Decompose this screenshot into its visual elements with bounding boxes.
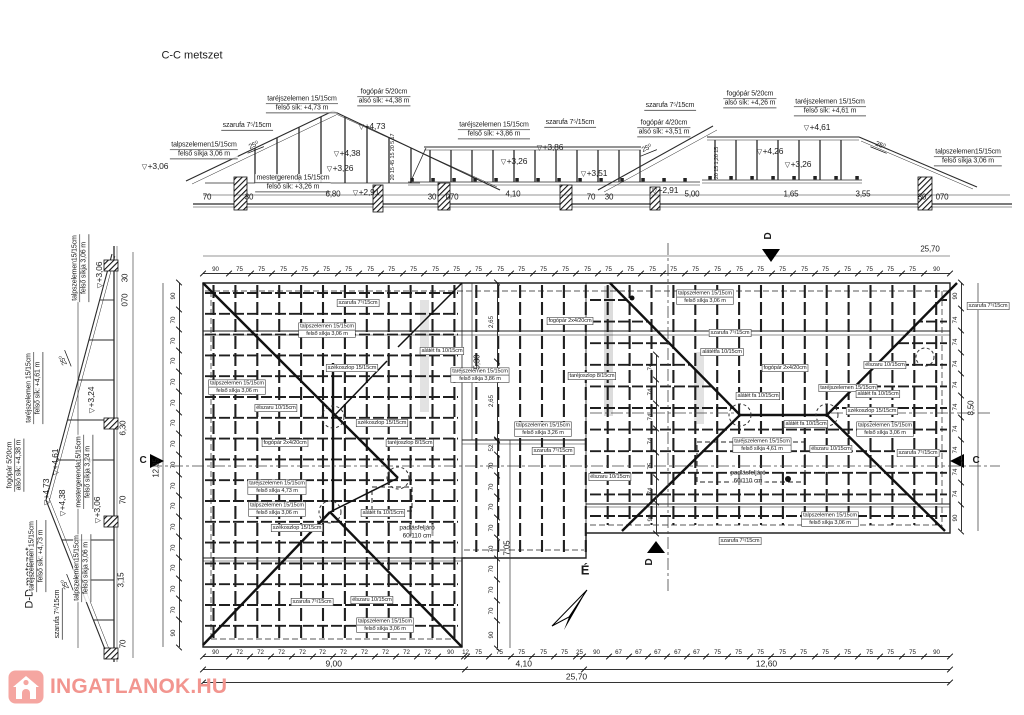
drawing-label: szarufa 7⁵/15cm: [54, 588, 63, 639]
watermark-logo: INGATLANOK.HU: [8, 670, 227, 704]
drawing-label: 30: [428, 193, 437, 202]
dimension-value: 72: [250, 645, 271, 656]
drawing-label: padlásfeljáró60/110 cm: [730, 469, 765, 484]
dimension-value: 90: [203, 645, 229, 656]
drawing-label: D: [763, 232, 775, 239]
drawing-label: alátét fa 10/15cm: [736, 392, 780, 400]
plan-shading: [420, 286, 704, 424]
drawing-label: +4,26: [757, 147, 784, 157]
drawing-label: fogópár 5/20cmalsó sík: +4,26 m: [723, 90, 777, 108]
drawing-label: taréjoszlop 8/15cm: [568, 372, 616, 380]
dimension-value: 75: [750, 645, 772, 656]
dimension-value: 4,10: [465, 658, 584, 669]
drawing-label: szarufa 7⁵/15cm: [291, 598, 333, 606]
dimension-value: 72: [313, 645, 334, 656]
dimension-value: 25: [576, 645, 583, 656]
drawing-label: szarufa 7⁵/15cm: [337, 299, 379, 307]
drawing-label: fogópár 2x4/20cm: [547, 317, 593, 325]
dimension-value: 90: [924, 645, 950, 656]
drawing-label: szarufa 7⁵/15cm: [221, 122, 272, 131]
drawing-label: +2,91: [353, 188, 380, 198]
dimension-value: 75: [707, 262, 729, 273]
drawing-label: talpszelemen15/15cmfelső síkja 3,06 m: [73, 534, 91, 602]
drawing-label: talpszelemen 15/15cmfelső síkja 3,06 m: [676, 290, 733, 305]
dimension-value: 75: [880, 645, 902, 656]
dimension-chain: 9074747474747474747490: [950, 283, 962, 531]
drawing-label: É: [581, 564, 589, 579]
drawing-label: 1,65: [784, 190, 799, 199]
dimension-value: 75: [858, 645, 880, 656]
drawing-label: +3,26: [785, 160, 812, 170]
dimension-value: 67: [687, 645, 706, 656]
drawing-label: élszaru 10/15cm: [810, 445, 853, 453]
dimension-chain: 9072727272727272727272901275757575752590…: [203, 645, 950, 657]
dimension-value: 75: [229, 262, 251, 273]
drawing-label: +3,06: [142, 162, 169, 172]
dimension-value: 67: [609, 645, 628, 656]
dimension-value: 75: [685, 262, 707, 273]
dimension-value: 75: [316, 262, 338, 273]
drawing-label: talpszelemen 15/15cmfelső síkja 3,06 m: [208, 380, 265, 395]
dimension-chain: 9,004,1012,60: [203, 658, 950, 670]
house-icon: [8, 670, 44, 704]
drawing-label: mestergerenda15/15cmfelső síkja 3,24 m: [75, 435, 93, 509]
drawing-label: taréjszelemen 15/15cmfelső síkja 4,73 m: [248, 480, 307, 495]
dimension-value: 75: [706, 645, 728, 656]
watermark-text: INGATLANOK.HU: [50, 675, 227, 699]
drawing-label: 30: [121, 274, 130, 283]
drawing-label: +3,24: [87, 387, 97, 414]
drawing-label: székoszlop 15/15cm: [271, 524, 323, 532]
dimension-value: 75: [663, 262, 685, 273]
dimension-value: 72: [354, 645, 375, 656]
dimension-value: 75: [880, 262, 902, 273]
drawing-label: 070: [446, 193, 459, 202]
dimension-value: 75: [771, 645, 793, 656]
drawing-label: szarufa 7⁵/15cm: [967, 302, 1009, 310]
dimension-value: 72: [292, 645, 313, 656]
dimension-value: 75: [532, 645, 554, 656]
drawing-label: C: [139, 455, 146, 467]
drawing-label: 70: [587, 193, 596, 202]
drawing-label: 70: [203, 193, 212, 202]
dimension-value: 72: [229, 645, 250, 656]
drawing-label: alátét fa 10/15cm: [420, 347, 464, 355]
drawing-label: talpszelemen 15/15cmfelső síkja 3,06 m: [801, 512, 858, 527]
dimension-value: 25,70: [203, 671, 950, 682]
drawing-label: 070: [936, 193, 949, 202]
dimension-value: 75: [815, 262, 837, 273]
drawing-label: talpszelemen15/15cmfelső síkja 3,06 m: [71, 234, 89, 302]
dimension-value: 75: [837, 262, 859, 273]
dimension-value: 75: [554, 645, 576, 656]
drawing-label: szarufa 7⁵/15cm: [709, 329, 751, 337]
dimension-value: 75: [750, 262, 772, 273]
blueprint-canvas: C-C metszetD-D metszettaréjszelemen 15/1…: [0, 0, 1024, 715]
dimension-value: 75: [858, 262, 880, 273]
drawing-label: 30: [918, 193, 927, 202]
drawing-label: székoszlop 15/15cm: [846, 407, 898, 415]
drawing-label: +4,73: [359, 122, 386, 132]
dimension-value: 72: [417, 645, 438, 656]
drawing-label: 12,35: [152, 458, 161, 477]
drawing-linework: [0, 0, 1024, 715]
drawing-label: talpszelemen 15/15cmfelső síkja 3,06 m: [298, 323, 355, 338]
drawing-label: +4,61: [804, 123, 831, 133]
drawing-label: 8,50: [967, 401, 976, 416]
drawing-label: +3,86: [537, 143, 564, 153]
dimension-value: 90: [924, 262, 950, 273]
drawing-label: talpszelemen 15/15cmfelső síkja 3,06 m: [856, 422, 913, 437]
drawing-label: élszaru 10/15cm: [351, 596, 394, 604]
dimension-value: 74: [645, 355, 656, 380]
dimension-value: 75: [489, 262, 511, 273]
dimension-value: 75: [902, 262, 924, 273]
drawing-label: +3,26: [327, 164, 354, 174]
dimension-value: 67: [648, 645, 667, 656]
dimension-value: 75: [294, 262, 316, 273]
drawing-label: 3,55: [856, 190, 871, 199]
dimension-chain: 2,652,65: [486, 283, 498, 440]
dimension-value: 75: [620, 262, 642, 273]
dimension-value: 75: [359, 262, 381, 273]
dimension-value: 72: [333, 645, 354, 656]
drawing-label: székoszlop 15/15cm: [326, 364, 378, 372]
dimension-value: 90: [203, 262, 229, 273]
drawing-label: szarufa 7⁵/15cm: [644, 102, 695, 111]
dimension-value: 75: [446, 262, 468, 273]
dimension-value: 75: [533, 262, 555, 273]
drawing-label: 6,80: [326, 190, 341, 199]
dimension-value: 75: [511, 645, 533, 656]
drawing-label: taréjszelemen 15/15cmfelső sík: +3,86 m: [458, 121, 530, 139]
drawing-label: fogópár 5/20cmalsó sík: +4,38 m: [6, 438, 24, 492]
drawing-label: D: [644, 558, 656, 565]
dimension-value: 90: [645, 503, 656, 533]
dimension-chain: 9070707070707070707070707070707090: [168, 283, 180, 647]
dimension-value: 75: [555, 262, 577, 273]
drawing-label: talpszelemen 15/15cmfelső síkja 3,26 m: [514, 422, 571, 437]
drawing-label: szarufa 7⁵/15cm: [719, 537, 761, 545]
drawing-label: taréjoszlop 8/15cm: [386, 439, 434, 447]
dimension-value: 75: [511, 262, 533, 273]
drawing-label: +4,73: [42, 479, 52, 506]
drawing-label: +3,06: [93, 497, 103, 524]
drawing-label: fogópár 2x4/20cm: [762, 364, 808, 372]
drawing-label: taréjszelemen 15/15cmfelső sík: +4,61 m: [794, 98, 866, 116]
drawing-label: +3,51: [581, 169, 608, 179]
dimension-value: 90: [168, 283, 179, 310]
drawing-label: 5,30: [473, 355, 482, 370]
dimension-value: 74: [645, 404, 656, 429]
drawing-label: alátét fa 10/15cm: [361, 509, 405, 517]
drawing-label: taréjszelemen 15/15cmfelső sík: +4,61 m: [25, 352, 43, 424]
dimension-value: 72: [271, 645, 292, 656]
dimension-value: 67: [667, 645, 686, 656]
dimension-value: 9,00: [203, 658, 465, 669]
dimension-value: 75: [381, 262, 403, 273]
drawing-label: 20 15 45 15 20 5 17: [390, 134, 396, 181]
drawing-label: 5,00: [685, 190, 700, 199]
drawing-label: talpszelemen15/15cmfelső síkja 3,06 m: [934, 148, 1002, 166]
north-arrow-icon: [552, 590, 587, 630]
drawing-label: talpszelemen 15/15cmfelső síkja 3,06 m: [356, 618, 413, 633]
drawing-label: taréjszelemen 15/15cmfelső síkja 4,61 m: [733, 438, 792, 453]
drawing-label: fogópár 5/20cmalsó sík: +4,38 m: [357, 88, 411, 106]
drawing-label: 70: [119, 496, 128, 505]
dimension-chain: 52707070707070707090: [486, 440, 498, 648]
drawing-label: 70: [119, 640, 128, 649]
drawing-label: talpszelemen15/15cmfelső síkja 3,06 m: [170, 141, 238, 159]
drawing-label: fogópár 2x4/20cm: [262, 439, 308, 447]
dimension-value: 75: [837, 645, 859, 656]
dimension-value: 12,60: [584, 658, 950, 669]
dimension-value: 67: [629, 645, 648, 656]
dimension-value: 75: [728, 645, 750, 656]
dimension-value: 75: [772, 262, 794, 273]
drawing-label: +4,38: [58, 490, 68, 517]
dimension-chain: 25,70: [203, 671, 950, 683]
drawing-label: 30: [245, 193, 254, 202]
dimension-value: 72: [375, 645, 396, 656]
dimension-chain: 74747474757490: [645, 355, 657, 533]
dimension-value: 75: [641, 262, 663, 273]
drawing-label: szarufa 7⁵/15cm: [897, 449, 939, 457]
drawing-label: +3,26: [501, 157, 528, 167]
dimension-value: 72: [396, 645, 417, 656]
drawing-label: 30: [605, 193, 614, 202]
dimension-value: 75: [424, 262, 446, 273]
drawing-label: szarufa 7⁵/15cm: [532, 447, 574, 455]
drawing-label: élszaru 10/15cm: [255, 404, 298, 412]
dimension-value: 75: [251, 262, 273, 273]
dimension-value: 2,65: [486, 283, 497, 362]
drawing-label: alátét fa 10/15cm: [856, 390, 900, 398]
dimension-value: 75: [272, 262, 294, 273]
dimension-value: 90: [950, 505, 961, 531]
drawing-label: alátét fa 10/15cm: [784, 420, 828, 428]
drawing-label: alátétfa 10/15cm: [701, 348, 744, 356]
drawing-label: 20 15 1,20 15: [714, 147, 720, 179]
drawing-label: taréjszelemen 15/15cmfelső sík: +4,73 m: [28, 520, 46, 592]
drawing-label: 6,30: [119, 421, 128, 436]
drawing-label: fogópár 4/20cmalsó sík: +3,51 m: [637, 119, 691, 137]
dimension-value: 75: [338, 262, 360, 273]
dimension-value: 90: [168, 620, 179, 647]
drawing-label: szarufa 7⁵/15cm: [544, 119, 595, 128]
dimension-value: 75: [468, 262, 490, 273]
drawing-label: 25,70: [920, 245, 939, 254]
drawing-label: talpszelemen 15/15cmfelső síkja 3,06 m: [248, 502, 305, 517]
dimension-value: 75: [815, 645, 837, 656]
drawing-label: 3,15: [117, 573, 126, 588]
drawing-label: +2,91: [652, 186, 679, 196]
drawing-label: 4,10: [506, 190, 521, 199]
drawing-label: 7,05: [503, 541, 512, 556]
dimension-value: 75: [793, 262, 815, 273]
drawing-label: C: [972, 455, 979, 467]
dimension-value: 90: [486, 621, 497, 648]
drawing-label: taréjszelemen 15/15cmfelső sík: +4,73 m: [266, 95, 338, 113]
dimension-value: 75: [728, 262, 750, 273]
dimension-value: 90: [583, 645, 609, 656]
drawing-label: mestergerenda 15/15cmfelső sík: +3,26 m: [255, 174, 331, 192]
dimension-value: 90: [438, 645, 464, 656]
drawing-label: +4,61: [51, 449, 61, 476]
drawing-label: 070: [121, 294, 130, 307]
dimension-value: 75: [403, 262, 425, 273]
drawing-label: élszaru 10/15cm: [589, 473, 632, 481]
drawing-label: C-C metszet: [161, 50, 222, 63]
dimension-value: 75: [598, 262, 620, 273]
drawing-label: taréjszelemen 15/15cmfelső síkja 3,86 m: [451, 368, 510, 383]
dimension-chain: 9075757575757575757575757575757575757575…: [203, 262, 950, 274]
dimension-value: 75: [902, 645, 924, 656]
drawing-label: élszaru 10/15cm: [864, 361, 907, 369]
dimension-value: 75: [793, 645, 815, 656]
dimension-value: 75: [576, 262, 598, 273]
drawing-label: +4,38: [334, 149, 361, 159]
drawing-label: padlásfeljáró60/110 cm: [399, 524, 434, 539]
drawing-label: székoszlop 15/15cm: [356, 419, 408, 427]
drawing-label: +3,06: [95, 262, 105, 289]
